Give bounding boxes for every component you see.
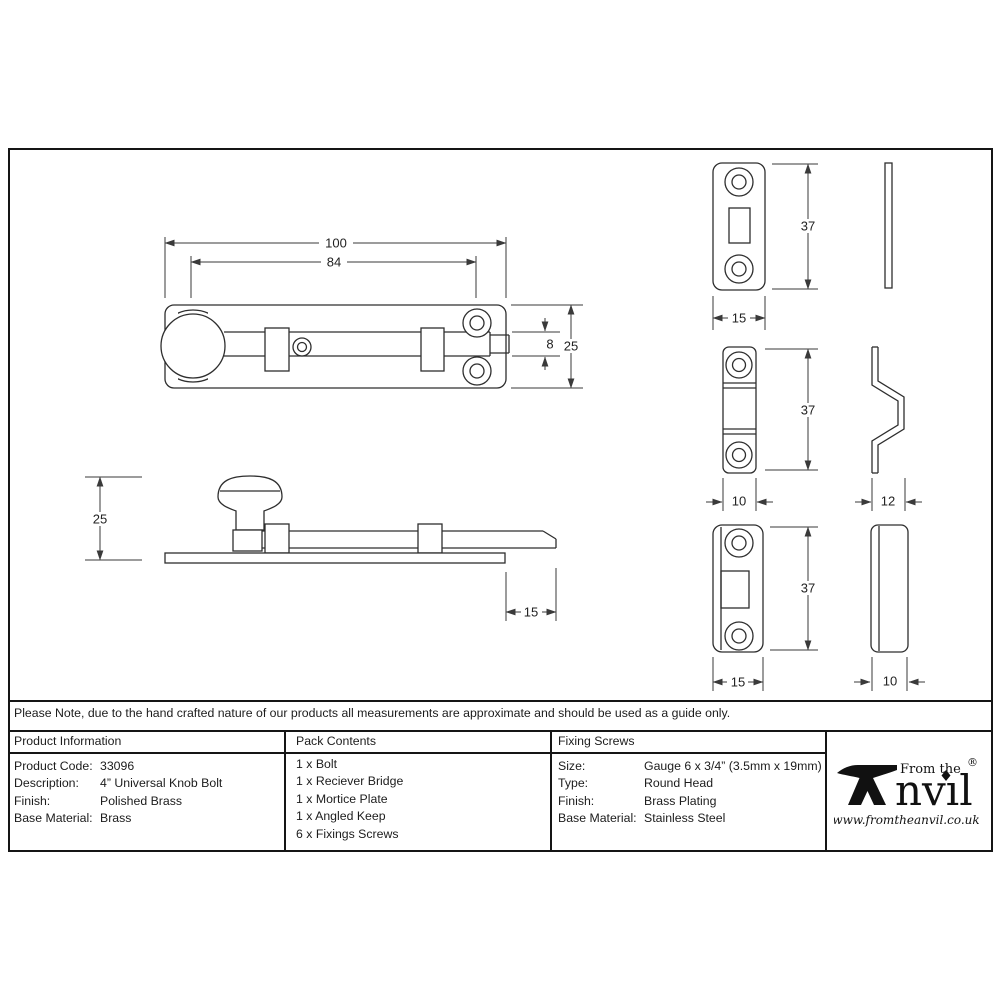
column-divider-2 — [550, 730, 552, 852]
screw-type-label: Type: — [558, 775, 588, 792]
dim-fixing-centres: 84 — [327, 255, 341, 270]
description-value: 4” Universal Knob Bolt — [100, 775, 222, 792]
dim-mortice-height: 37 — [801, 219, 815, 234]
product-code-value: 33096 — [100, 758, 134, 775]
dim-bridge-height: 37 — [801, 403, 815, 418]
mortice-plate-front-view — [713, 163, 765, 290]
dim-bolt-width: 8 — [546, 337, 553, 352]
table-row: Description: 4” Universal Knob Bolt — [14, 775, 276, 792]
screw-base-material-label: Base Material: — [558, 810, 637, 827]
finish-label: Finish: — [14, 793, 50, 810]
header-fixing-screws: Fixing Screws — [558, 734, 635, 748]
dim-bridge-depth: 12 — [881, 494, 895, 509]
note-row-top-border — [8, 700, 993, 702]
spec-sheet: 100 84 25 8 — [0, 0, 1000, 1000]
column-divider-1 — [284, 730, 286, 852]
screw-base-material-value: Stainless Steel — [644, 810, 725, 827]
dim-plate-width: 25 — [564, 339, 578, 354]
table-row: Finish: Polished Brass — [14, 793, 276, 810]
bolt-top-view — [157, 305, 509, 388]
measurement-disclaimer: Please Note, due to the hand crafted nat… — [14, 706, 974, 720]
table-row: Finish: Brass Plating — [558, 793, 818, 810]
base-material-value: Brass — [100, 810, 131, 827]
logo-website: www.fromtheanvil.co.uk — [834, 813, 980, 827]
table-row: Base Material: Brass — [14, 810, 276, 827]
anvil-icon — [837, 765, 897, 805]
bolt-side-view-dimensions: 25 15 — [85, 477, 556, 621]
list-item: 6 x Fixings Screws — [296, 826, 542, 843]
product-information-cell: Product Code: 33096 Description: 4” Univ… — [14, 758, 276, 848]
bolt-top-view-dimensions: 100 84 25 8 — [165, 236, 583, 389]
header-product-information: Product Information — [14, 734, 121, 748]
mortice-plate-side-view — [885, 163, 892, 288]
table-header-bottom-border — [8, 752, 826, 754]
receiver-bridge-side-view — [872, 347, 904, 473]
list-item: 1 x Mortice Plate — [296, 791, 542, 808]
dim-side-height: 25 — [93, 512, 107, 527]
technical-drawing: 100 84 25 8 — [0, 0, 1000, 1000]
screw-type-value: Round Head — [644, 775, 713, 792]
list-item: 1 x Bolt — [296, 756, 542, 773]
fixing-screws-cell: Size: Gauge 6 x 3/4” (3.5mm x 19mm) Type… — [558, 758, 818, 848]
dim-keep-height: 37 — [801, 581, 815, 596]
list-item: 1 x Reciever Bridge — [296, 773, 542, 790]
from-the-anvil-logo: From the nvıl ® www.fromtheanvil.co.uk — [834, 748, 984, 833]
header-pack-contents: Pack Contents — [296, 734, 376, 748]
base-material-label: Base Material: — [14, 810, 93, 827]
description-label: Description: — [14, 775, 79, 792]
angled-keep-front-view — [713, 525, 763, 652]
logo-anvil-text: nvıl — [895, 766, 973, 815]
angled-keep-side-view — [871, 525, 908, 652]
finish-value: Polished Brass — [100, 793, 182, 810]
dim-bridge-width: 10 — [732, 494, 746, 509]
mortice-plate-dimensions: 37 15 — [713, 164, 819, 330]
table-header-top-border — [8, 730, 993, 732]
screw-finish-label: Finish: — [558, 793, 594, 810]
registered-trademark-symbol: ® — [967, 756, 978, 769]
list-item: 1 x Angled Keep — [296, 808, 542, 825]
table-row: Size: Gauge 6 x 3/4” (3.5mm x 19mm) — [558, 758, 818, 775]
dim-keep-depth: 10 — [883, 674, 897, 689]
dim-overall-length: 100 — [325, 236, 347, 251]
screw-size-label: Size: — [558, 758, 585, 775]
pack-contents-cell: 1 x Bolt 1 x Reciever Bridge 1 x Mortice… — [296, 756, 542, 843]
receiver-bridge-front-view — [723, 347, 756, 473]
screw-finish-value: Brass Plating — [644, 793, 716, 810]
table-row: Product Code: 33096 — [14, 758, 276, 775]
angled-keep-dimensions: 37 15 10 — [713, 527, 925, 691]
table-row: Type: Round Head — [558, 775, 818, 792]
dim-mortice-width: 15 — [732, 311, 746, 326]
dim-keep-width: 15 — [731, 675, 745, 690]
screw-size-value: Gauge 6 x 3/4” (3.5mm x 19mm) — [644, 758, 822, 775]
product-code-label: Product Code: — [14, 758, 93, 775]
table-row: Base Material: Stainless Steel — [558, 810, 818, 827]
bolt-side-view — [165, 476, 556, 563]
column-divider-3 — [825, 730, 827, 852]
dim-side-throw: 15 — [524, 605, 538, 620]
